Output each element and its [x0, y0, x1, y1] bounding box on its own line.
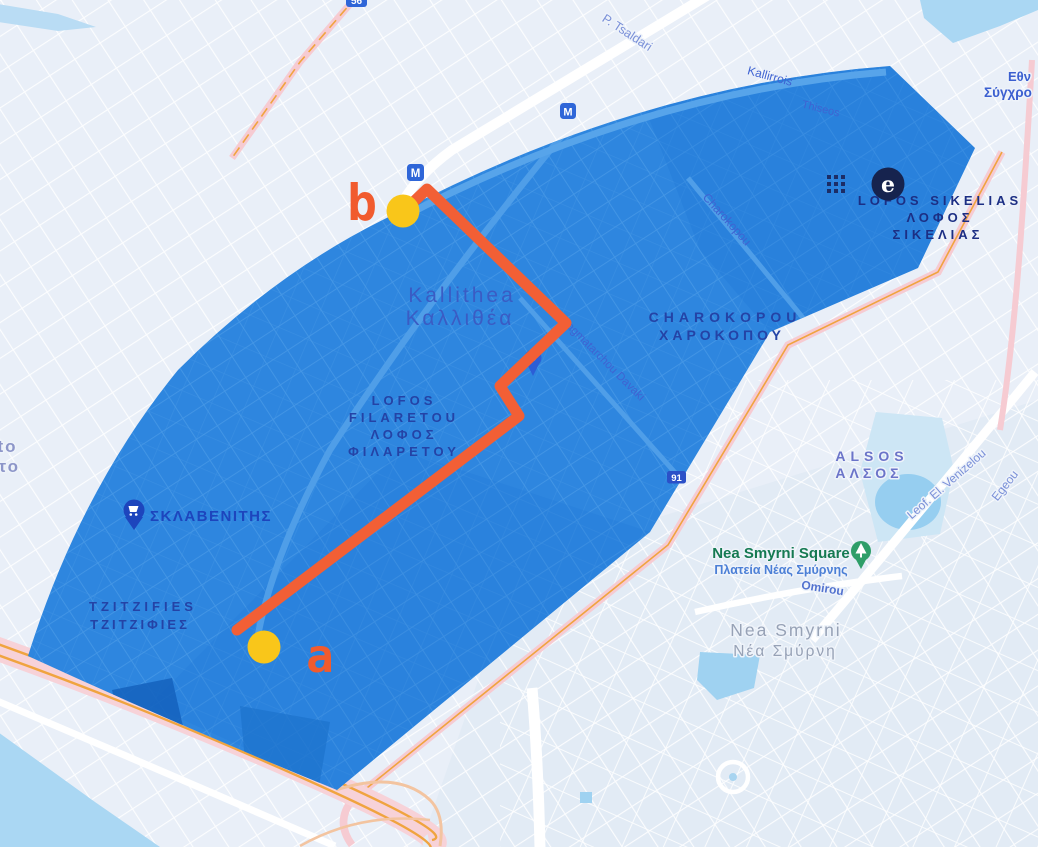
label-moschato-gr-partial: ατο [0, 457, 20, 476]
label-lofos-sikelias-3: ΣΙΚΕΛΙΑΣ [893, 227, 984, 242]
marker-b-label: b [347, 174, 377, 232]
label-nea-smyrni-square-en: Nea Smyrni Square [712, 545, 850, 562]
pond-tiny [580, 792, 592, 803]
grid-icon [827, 175, 845, 193]
map-canvas[interactable]: Kallithea Καλλιθέα LOFOS FILARETOU ΛΟΦΟΣ… [0, 0, 1038, 847]
label-lofos-sikelias-2: ΛΟΦΟΣ [906, 210, 973, 225]
label-nea-smyrni-gr: Νέα Σμύρνη [733, 643, 837, 660]
label-nea-smyrni-square-gr: Πλατεία Νέας Σμύρνης [714, 563, 847, 577]
label-tzitzifies-en: TZITZIFIES [89, 599, 197, 614]
marker-a-label: a [306, 629, 334, 683]
label-alsos-en: ALSOS [835, 448, 908, 464]
road-badge-56: 56 [346, 0, 367, 7]
entrance-marker-e[interactable]: e [872, 168, 905, 201]
svg-text:e: e [881, 172, 895, 198]
label-lofos-filaretou-2: FILARETOU [349, 410, 459, 425]
metro-station-icon-2[interactable]: M [560, 103, 576, 119]
label-museum-partial-1: Εθν [1008, 69, 1031, 84]
metro-station-icon-1[interactable]: M [407, 164, 424, 181]
label-alsos-gr: ΑΛΣΟΣ [835, 465, 902, 481]
label-nea-smyrni-en: Nea Smyrni [730, 620, 841, 640]
label-kallithea-en: Kallithea [408, 284, 516, 307]
label-charokopou-gr: ΧΑΡΟΚΟΠΟΥ [659, 327, 785, 343]
svg-text:M: M [563, 107, 572, 119]
label-museum-partial-2: Σύγχρο [984, 85, 1032, 100]
label-moschato-en-partial: ato [0, 437, 18, 456]
road-badge-91: 91 [667, 471, 686, 484]
label-sklavenitis: ΣΚΛΑΒΕΝΙΤΗΣ [150, 508, 272, 525]
svg-text:91: 91 [671, 473, 682, 484]
marker-b[interactable] [387, 195, 420, 228]
label-lofos-filaretou-3: ΛΟΦΟΣ [370, 427, 437, 442]
svg-text:56: 56 [351, 0, 363, 7]
label-kallithea-gr: Καλλιθέα [406, 307, 515, 330]
roundabout-center [729, 773, 737, 781]
label-tzitzifies-gr: ΤΖΙΤΖΙΦΙΕΣ [90, 617, 190, 632]
label-charokopou-en: CHAROKOPOU [649, 309, 802, 325]
svg-text:M: M [411, 168, 421, 180]
marker-a[interactable] [248, 631, 281, 664]
label-lofos-filaretou-1: LOFOS [372, 393, 437, 408]
map-container: Kallithea Καλλιθέα LOFOS FILARETOU ΛΟΦΟΣ… [0, 0, 1038, 847]
label-lofos-filaretou-4: ΦΙΛΑΡΕΤΟΥ [348, 444, 460, 459]
